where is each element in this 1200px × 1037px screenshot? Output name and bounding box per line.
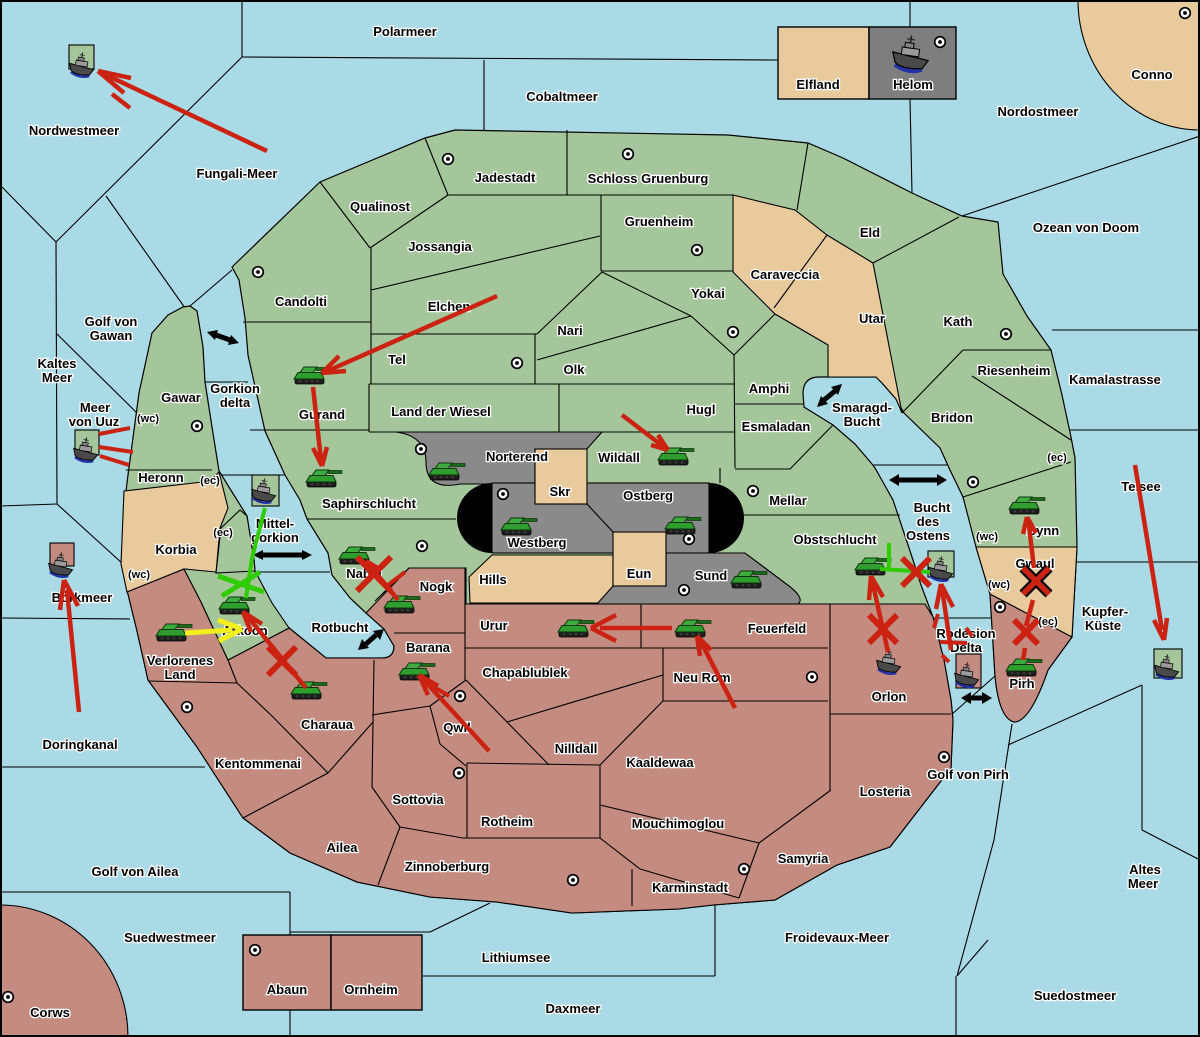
svg-text:Bucht: Bucht bbox=[914, 500, 952, 515]
svg-text:Chapablublek: Chapablublek bbox=[482, 665, 568, 680]
svg-text:(wc): (wc) bbox=[137, 413, 159, 425]
svg-text:Suedostmeer: Suedostmeer bbox=[1034, 988, 1116, 1003]
svg-text:Schloss Gruenburg: Schloss Gruenburg bbox=[588, 171, 709, 186]
svg-text:Suedwestmeer: Suedwestmeer bbox=[124, 930, 216, 945]
svg-text:(ec): (ec) bbox=[1047, 452, 1067, 464]
svg-text:(wc): (wc) bbox=[976, 531, 998, 543]
svg-text:Meer: Meer bbox=[80, 400, 110, 415]
svg-text:Cobaltmeer: Cobaltmeer bbox=[526, 89, 598, 104]
svg-text:Bridon: Bridon bbox=[931, 410, 973, 425]
svg-text:Jadestadt: Jadestadt bbox=[475, 170, 536, 185]
svg-text:(ec): (ec) bbox=[213, 527, 233, 539]
svg-text:Abaun: Abaun bbox=[267, 982, 308, 997]
svg-text:Lithiumsee: Lithiumsee bbox=[482, 950, 551, 965]
svg-text:Nordwestmeer: Nordwestmeer bbox=[29, 123, 119, 138]
svg-text:(wc): (wc) bbox=[988, 579, 1010, 591]
svg-text:Kamalastrasse: Kamalastrasse bbox=[1069, 372, 1161, 387]
svg-text:Kaltes: Kaltes bbox=[37, 356, 76, 371]
svg-text:Kath: Kath bbox=[944, 314, 973, 329]
svg-text:Ozean von Doom: Ozean von Doom bbox=[1033, 220, 1139, 235]
svg-text:Verlorenes: Verlorenes bbox=[147, 653, 214, 668]
svg-text:Meer: Meer bbox=[1128, 876, 1158, 891]
svg-text:Eld: Eld bbox=[860, 225, 880, 240]
svg-text:Golf von Pirh: Golf von Pirh bbox=[927, 767, 1009, 782]
svg-text:Feuerfeld: Feuerfeld bbox=[748, 621, 807, 636]
svg-text:Hugl: Hugl bbox=[687, 402, 716, 417]
svg-text:Ailea: Ailea bbox=[326, 840, 358, 855]
svg-text:von Uuz: von Uuz bbox=[69, 414, 120, 429]
svg-text:Charaua: Charaua bbox=[301, 717, 354, 732]
svg-text:(ec): (ec) bbox=[1038, 616, 1058, 628]
svg-text:Caraveccia: Caraveccia bbox=[751, 267, 820, 282]
svg-text:Golf von: Golf von bbox=[85, 314, 138, 329]
svg-text:Daxmeer: Daxmeer bbox=[546, 1001, 601, 1016]
svg-text:Bucht: Bucht bbox=[844, 414, 882, 429]
svg-text:(ec): (ec) bbox=[200, 475, 220, 487]
svg-text:Land der Wiesel: Land der Wiesel bbox=[391, 404, 491, 419]
svg-text:Smaragd-: Smaragd- bbox=[832, 400, 892, 415]
svg-text:Helom: Helom bbox=[893, 77, 933, 92]
svg-text:Mellar: Mellar bbox=[769, 493, 807, 508]
svg-text:Gawan: Gawan bbox=[90, 328, 133, 343]
svg-text:Candolti: Candolti bbox=[275, 294, 327, 309]
svg-text:Skr: Skr bbox=[550, 484, 571, 499]
svg-text:Nari: Nari bbox=[557, 323, 582, 338]
svg-text:Wildall: Wildall bbox=[598, 450, 640, 465]
svg-text:Gruenheim: Gruenheim bbox=[625, 214, 694, 229]
svg-text:Land: Land bbox=[164, 667, 195, 682]
svg-text:Heronn: Heronn bbox=[138, 470, 184, 485]
svg-text:Conno: Conno bbox=[1131, 67, 1172, 82]
svg-text:Orlon: Orlon bbox=[872, 689, 907, 704]
svg-text:Golf von Ailea: Golf von Ailea bbox=[92, 864, 180, 879]
svg-text:Doringkanal: Doringkanal bbox=[42, 737, 117, 752]
svg-text:Küste: Küste bbox=[1085, 618, 1121, 633]
svg-text:Altes: Altes bbox=[1129, 862, 1161, 877]
svg-text:Pirh: Pirh bbox=[1009, 676, 1034, 691]
svg-text:Ostens: Ostens bbox=[906, 528, 950, 543]
svg-text:Fungali-Meer: Fungali-Meer bbox=[197, 166, 278, 181]
svg-text:Saphirschlucht: Saphirschlucht bbox=[322, 496, 417, 511]
svg-text:Barana: Barana bbox=[406, 640, 451, 655]
svg-text:Nogk: Nogk bbox=[420, 579, 453, 594]
svg-text:(wc): (wc) bbox=[128, 569, 150, 581]
svg-text:Ornheim: Ornheim bbox=[344, 982, 397, 997]
svg-text:Tel: Tel bbox=[388, 352, 406, 367]
svg-text:Nordostmeer: Nordostmeer bbox=[998, 104, 1079, 119]
svg-text:Gorkion: Gorkion bbox=[210, 381, 260, 396]
svg-text:des: des bbox=[917, 514, 939, 529]
svg-text:Froidevaux-Meer: Froidevaux-Meer bbox=[785, 930, 889, 945]
svg-text:Yokai: Yokai bbox=[691, 286, 725, 301]
svg-text:Westberg: Westberg bbox=[508, 535, 567, 550]
svg-text:Riesenheim: Riesenheim bbox=[978, 363, 1051, 378]
svg-text:Urur: Urur bbox=[480, 618, 507, 633]
svg-text:Korbia: Korbia bbox=[155, 542, 197, 557]
svg-text:Qualinost: Qualinost bbox=[350, 199, 411, 214]
svg-text:Rotbucht: Rotbucht bbox=[311, 620, 369, 635]
svg-text:Eun: Eun bbox=[627, 566, 652, 581]
svg-text:Karminstadt: Karminstadt bbox=[652, 880, 729, 895]
svg-text:Ostberg: Ostberg bbox=[623, 488, 673, 503]
svg-text:Gawar: Gawar bbox=[161, 390, 201, 405]
svg-text:Kaaldewaa: Kaaldewaa bbox=[626, 755, 694, 770]
svg-text:Samyria: Samyria bbox=[778, 851, 829, 866]
svg-text:Norterend: Norterend bbox=[486, 449, 548, 464]
svg-text:Polarmeer: Polarmeer bbox=[373, 24, 437, 39]
svg-text:Rotheim: Rotheim bbox=[481, 814, 533, 829]
svg-text:Hills: Hills bbox=[479, 572, 506, 587]
svg-text:Elfland: Elfland bbox=[796, 77, 839, 92]
svg-text:Olk: Olk bbox=[564, 362, 586, 377]
svg-text:Jossangia: Jossangia bbox=[408, 239, 472, 254]
svg-text:Esmaladan: Esmaladan bbox=[742, 419, 811, 434]
svg-text:Obstschlucht: Obstschlucht bbox=[793, 532, 877, 547]
svg-text:Mouchimoglou: Mouchimoglou bbox=[632, 816, 724, 831]
svg-text:Sottovia: Sottovia bbox=[392, 792, 444, 807]
svg-text:Meer: Meer bbox=[42, 370, 72, 385]
svg-text:Kupfer-: Kupfer- bbox=[1082, 604, 1128, 619]
svg-text:Corws: Corws bbox=[30, 1005, 70, 1020]
svg-text:delta: delta bbox=[220, 395, 251, 410]
svg-text:Sund: Sund bbox=[695, 568, 728, 583]
svg-text:Losteria: Losteria bbox=[860, 784, 911, 799]
svg-text:Kentommenai: Kentommenai bbox=[215, 756, 301, 771]
svg-text:Utar: Utar bbox=[859, 311, 885, 326]
svg-text:Zinnoberburg: Zinnoberburg bbox=[405, 859, 490, 874]
svg-text:Amphi: Amphi bbox=[749, 381, 789, 396]
svg-text:Gurand: Gurand bbox=[299, 407, 345, 422]
svg-text:Nilldall: Nilldall bbox=[555, 741, 598, 756]
